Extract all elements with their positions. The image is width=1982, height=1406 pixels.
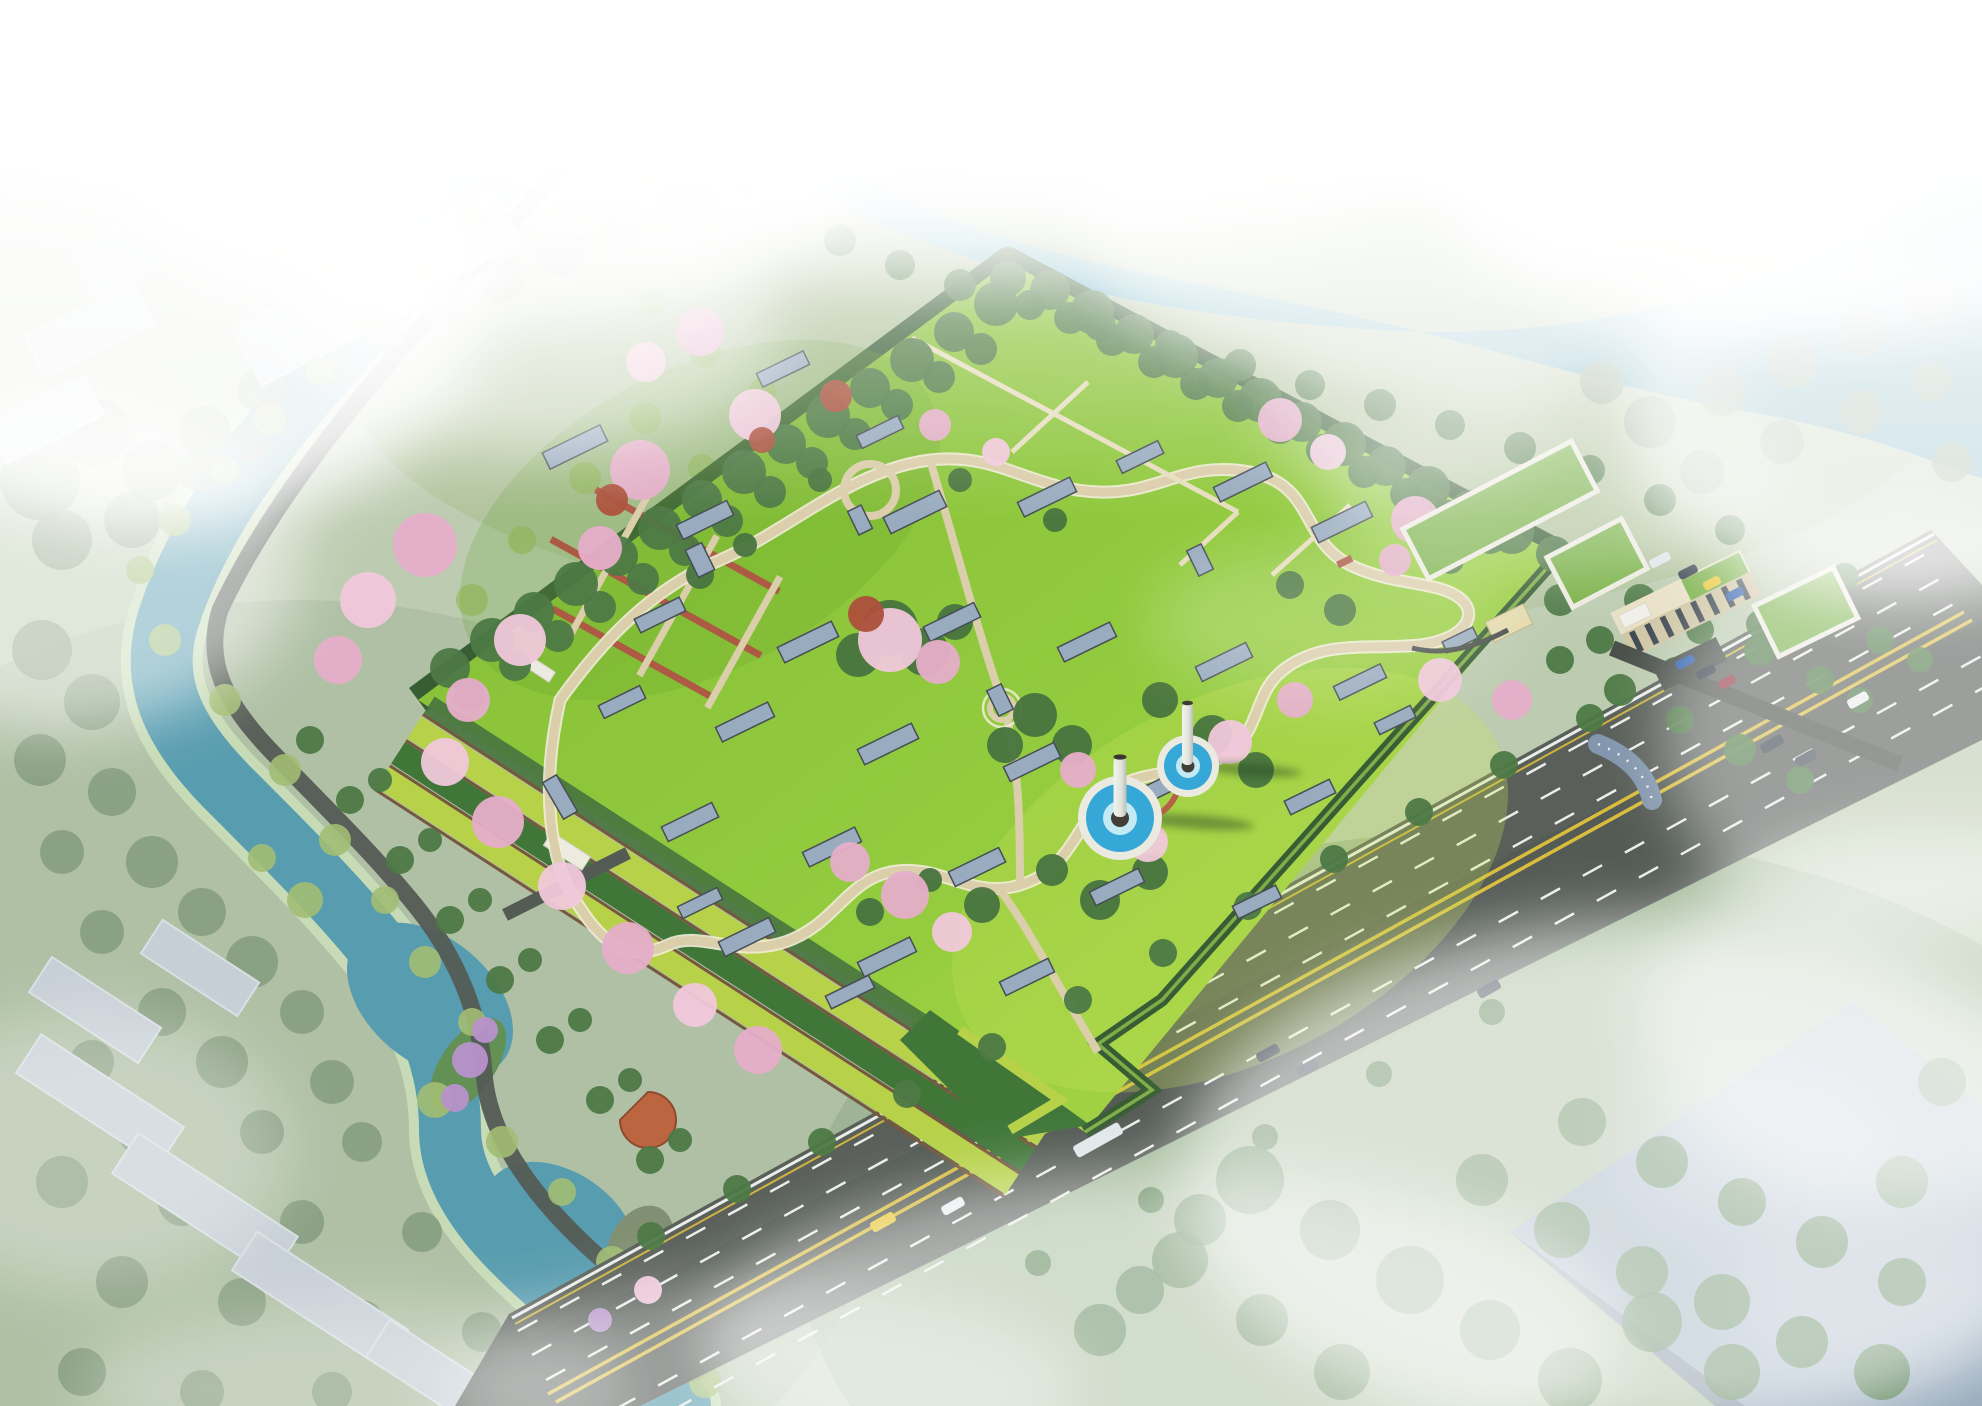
overall-haze: [0, 0, 1982, 1406]
scene-svg: [0, 0, 1982, 1406]
aerial-rendering-canvas: [0, 0, 1982, 1406]
